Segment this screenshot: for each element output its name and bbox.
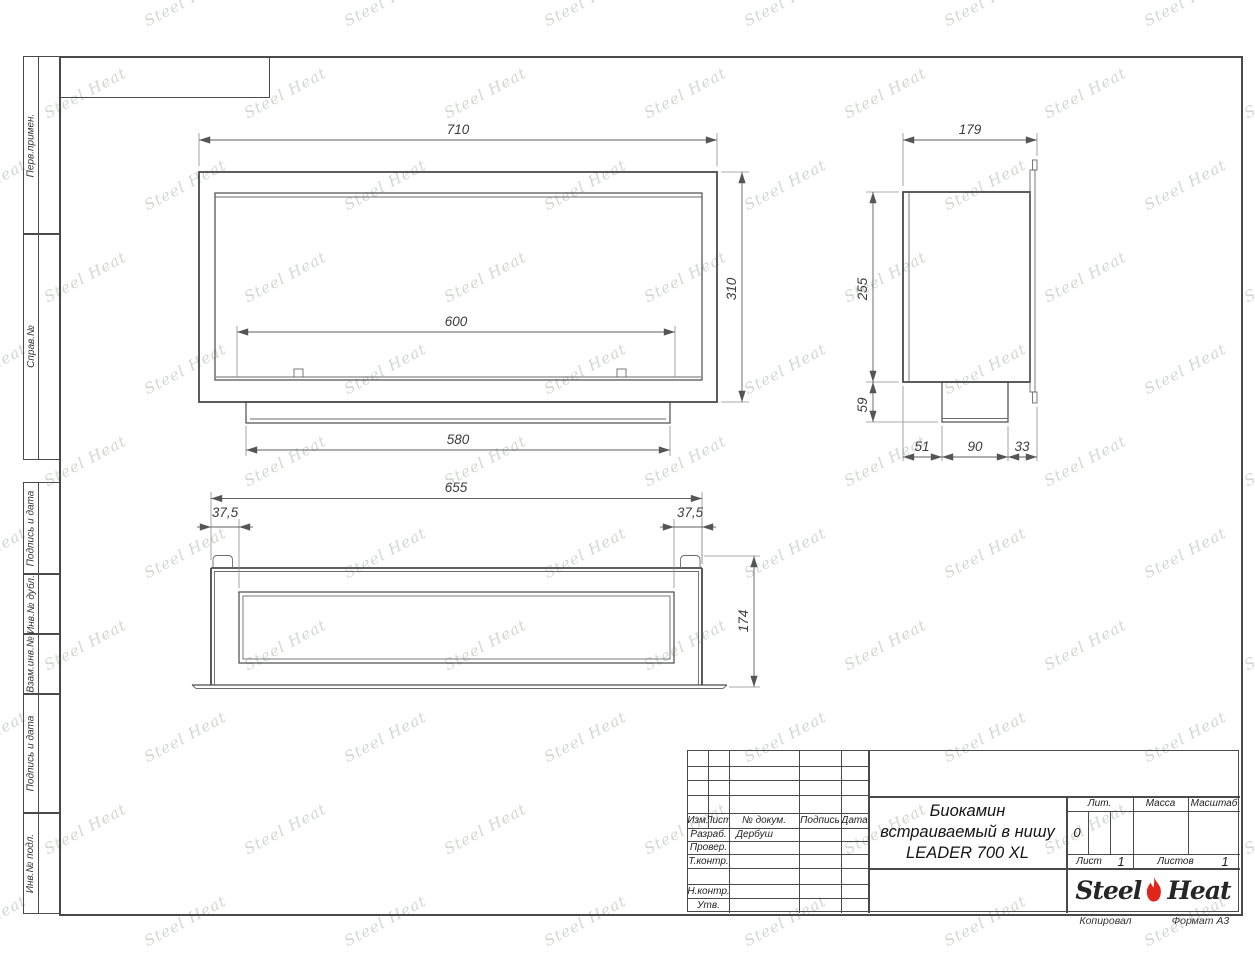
divider-line: [1088, 811, 1089, 854]
dim-top-depth: 174: [736, 610, 751, 633]
sidebar-label: Инв.№ подл.: [26, 833, 37, 892]
hook-right: [681, 556, 701, 569]
sidebar-cell-inv-dubl: Инв.№ дубл.: [23, 573, 61, 635]
dim-front-base: 580: [447, 432, 470, 447]
burner-clip-right: [617, 369, 626, 377]
divider-line: [688, 766, 868, 767]
divider-line: [688, 795, 868, 796]
dim-side-b1: 51: [914, 439, 929, 454]
sidebar-label: Подпись и дата: [26, 716, 37, 792]
rev-col-data: Дата: [841, 813, 868, 828]
corner-stamp: [59, 56, 270, 98]
dim-front-width: 710: [447, 122, 470, 137]
sidebar-cell-sprav-no: Справ.№: [23, 233, 61, 460]
dim-top-inset-left: 37,5: [212, 505, 239, 520]
sidebar-cell-perv-primen: Перв.примен.: [23, 56, 61, 235]
top-opening: [239, 592, 674, 663]
divider-line: [688, 868, 868, 869]
front-base: [246, 402, 670, 423]
sig-nkontr-label: Н.контр.: [688, 884, 729, 898]
side-view: 179 255 59 51 90 33: [855, 122, 1037, 461]
sidebar-cell-podpis-data-1: Подпись и дата: [23, 482, 61, 575]
rev-col-izm: Изм.: [688, 813, 708, 828]
sidebar-label: Справ.№: [26, 325, 37, 368]
sidebar-cell-inv-podl: Инв.№ подл.: [23, 812, 61, 914]
hook-left: [213, 556, 233, 569]
sig-razrab-label: Разраб.: [688, 828, 729, 841]
company-logo: Steel Heat: [1068, 869, 1238, 911]
mass-label: Масса: [1133, 796, 1188, 811]
dim-side-b2: 90: [967, 439, 983, 454]
product-title-line2: встраиваемый в нишу: [880, 822, 1055, 843]
scale-label: Масштаб: [1188, 796, 1240, 811]
sheet-label: Лист: [1068, 854, 1110, 868]
dim-side-box: 59: [855, 397, 870, 413]
dim-front-height: 310: [724, 277, 739, 300]
sidebar-cell-vzam-inv: Взам.инв.№: [23, 633, 61, 695]
drawing-sheet: Steel HeatSteel HeatSteel HeatSteel Heat…: [0, 0, 1255, 970]
product-title-line3: LEADER 700 XL: [906, 843, 1029, 864]
title-block: Изм. Лист № докум. Подпись Дата Разраб. …: [687, 750, 1239, 912]
sidebar-label: Подпись и дата: [26, 491, 37, 567]
divider-line: [841, 751, 842, 913]
dim-side-b3: 33: [1014, 439, 1030, 454]
sheet-value: 1: [1110, 854, 1132, 868]
product-title-line1: Биокамин: [930, 801, 1006, 822]
divider-line: [1066, 811, 1240, 812]
logo-heat-text: Heat: [1167, 876, 1230, 905]
format-label: Формат А3: [1158, 914, 1243, 927]
front-view: 710 310 600 580: [199, 122, 749, 456]
rev-col-podpis: Подпись: [799, 813, 841, 828]
burner-clip-left: [294, 369, 303, 377]
sig-razrab-name: Дербуш: [729, 828, 799, 841]
divider-line: [799, 751, 800, 913]
rev-col-list: Лист: [708, 813, 729, 828]
logo-steel-text: Steel: [1075, 876, 1141, 905]
lit-value: 0: [1066, 811, 1088, 854]
sig-prover-label: Провер.: [688, 841, 729, 854]
divider-line: [1110, 811, 1111, 854]
sig-tkontr-label: Т.контр.: [688, 854, 729, 868]
dim-side-depth: 179: [959, 122, 982, 137]
lit-label: Лит.: [1066, 796, 1133, 811]
sig-utv-label: Утв.: [688, 898, 729, 913]
dim-top-width: 655: [445, 480, 468, 495]
top-view: 655 37,5 37,5 174: [192, 480, 760, 689]
sidebar-label: Перв.примен.: [26, 114, 37, 178]
dim-front-opening: 600: [445, 314, 468, 329]
dim-top-inset-right: 37,5: [677, 505, 704, 520]
sidebar-cell-podpis-data-2: Подпись и дата: [23, 693, 61, 814]
sidebar-label: Инв.№ дубл.: [26, 575, 37, 634]
sheets-label: Листов: [1138, 854, 1213, 868]
flame-icon: [1143, 875, 1165, 905]
divider-line: [688, 780, 868, 781]
copied-label: Копировал: [1058, 914, 1153, 927]
rev-col-docnum: № докум.: [729, 813, 799, 828]
side-base: [942, 382, 1008, 422]
sidebar-label: Взам.инв.№: [26, 636, 37, 692]
sheets-value: 1: [1213, 854, 1237, 868]
product-title: Биокамин встраиваемый в нишу LEADER 700 …: [869, 797, 1066, 868]
dim-side-height: 255: [855, 277, 870, 301]
